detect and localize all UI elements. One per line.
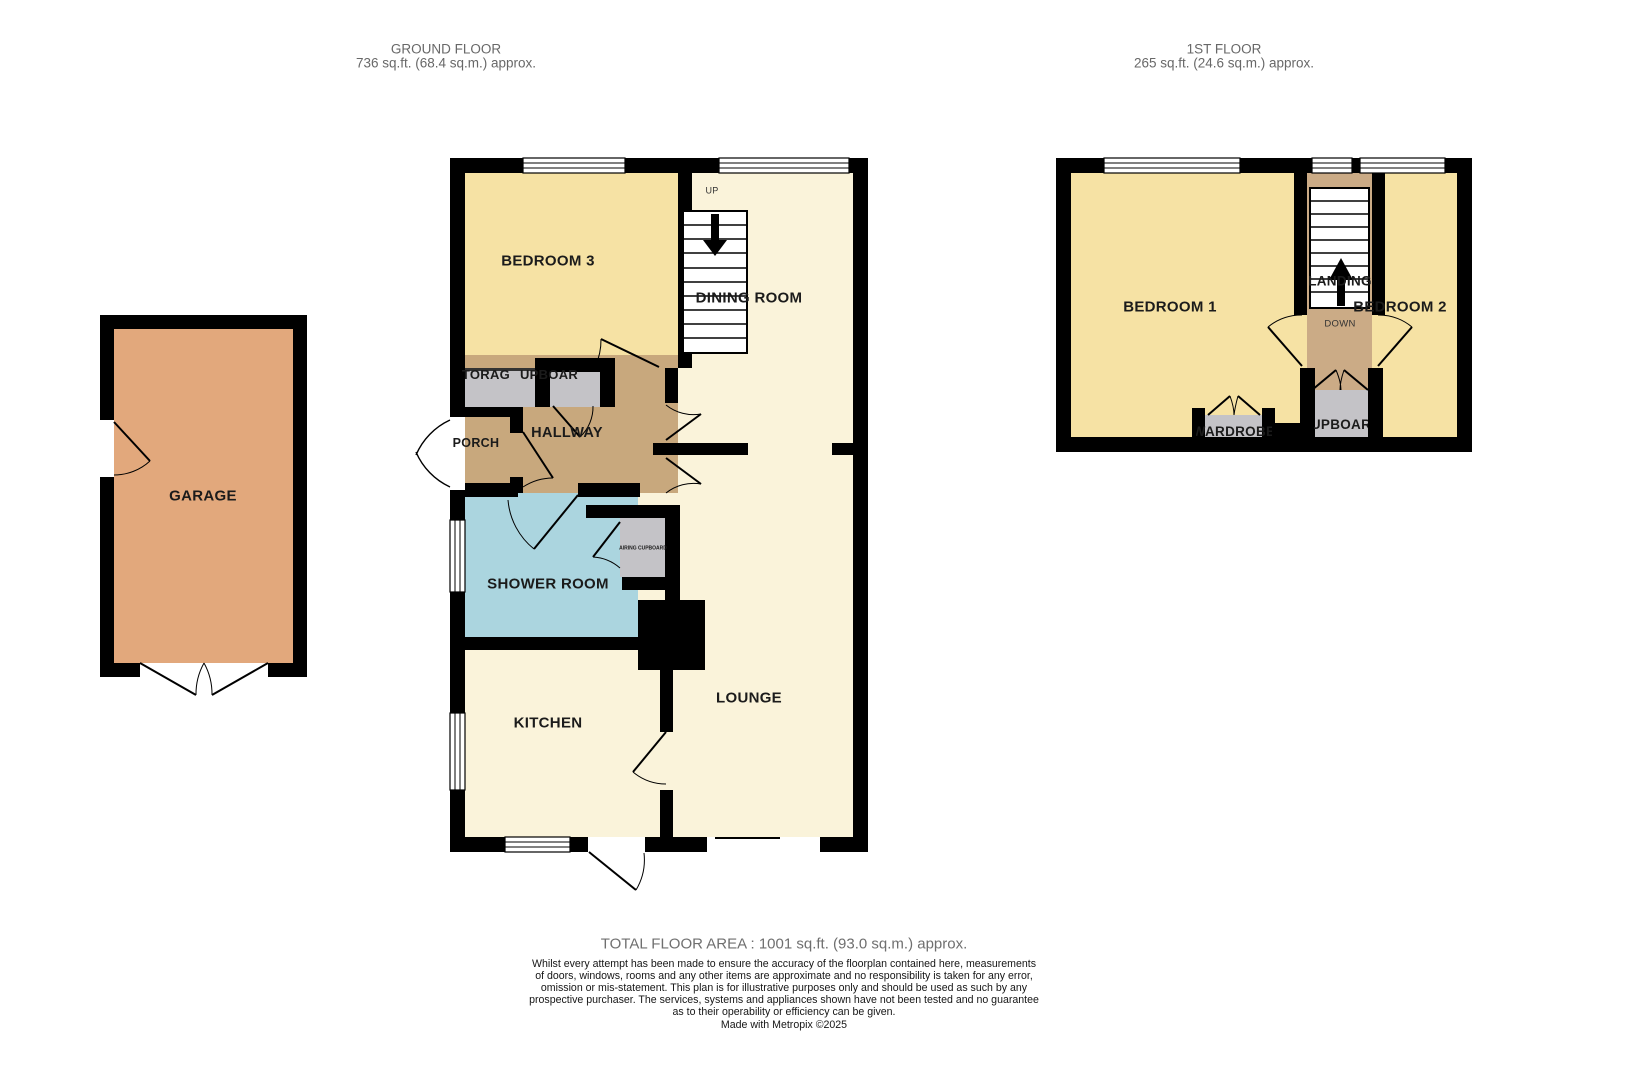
- wall: [1368, 368, 1383, 437]
- wall: [1294, 158, 1307, 315]
- garage-side-door-opening: [100, 420, 114, 477]
- wall: [600, 358, 615, 407]
- first-floor-area: 265 sq.ft. (24.6 sq.m.) approx.: [1134, 56, 1314, 70]
- room-label-bedroom3: BEDROOM 3: [501, 254, 595, 269]
- room-label-shower: SHOWER ROOM: [487, 577, 609, 592]
- stairs-up-label: UP: [705, 187, 718, 196]
- room-label-cupboard-gf: CUPBOARD: [520, 366, 578, 382]
- wall: [832, 443, 853, 455]
- room-label-landing: LANDING: [1308, 274, 1372, 288]
- gf-bedroom3-floor: [465, 173, 678, 368]
- disclaimer-line: of doors, windows, rooms and any other i…: [484, 970, 1084, 982]
- wall: [622, 577, 680, 590]
- wall: [1275, 423, 1302, 437]
- kitchen-back-door: [589, 852, 644, 890]
- gf-chimney-block: [638, 600, 705, 670]
- wall: [510, 417, 523, 433]
- window: [523, 158, 625, 173]
- metropix-credit: Made with Metropix ©2025: [484, 1019, 1084, 1031]
- disclaimer-line: omission or mis-statement. This plan is …: [484, 982, 1084, 994]
- wall: [578, 483, 640, 497]
- room-label-wardrobe: WARDROBE: [1196, 424, 1272, 439]
- room-label-airing-cupboard: AIRING CUPBOARD: [619, 547, 667, 552]
- window: [1312, 158, 1352, 173]
- wall: [1300, 368, 1315, 437]
- gf-back-door-opening: [588, 837, 645, 852]
- room-label-bedroom2: BEDROOM 2: [1353, 300, 1447, 315]
- gf-lounge-opening: [707, 837, 820, 852]
- room-label-bedroom1: BEDROOM 1: [1123, 300, 1217, 315]
- front-door: [416, 420, 450, 487]
- window: [719, 158, 849, 173]
- room-label-kitchen: KITCHEN: [514, 716, 583, 731]
- room-label-hallway: HALLWAY: [531, 426, 603, 441]
- wall: [653, 443, 748, 455]
- ground-floor-plan: [416, 158, 868, 890]
- first-floor-title: 1ST FLOOR: [1187, 42, 1262, 56]
- wall: [450, 637, 640, 650]
- garage-plan: [100, 315, 307, 695]
- window: [1360, 158, 1445, 173]
- wall: [665, 368, 678, 403]
- window: [450, 713, 465, 790]
- wall: [1372, 158, 1385, 315]
- stairs-down-label: DOWN: [1324, 319, 1355, 329]
- wall: [660, 670, 673, 732]
- disclaimer-line: as to their operability or efficiency ca…: [484, 1006, 1084, 1018]
- total-floor-area: TOTAL FLOOR AREA : 1001 sq.ft. (93.0 sq.…: [601, 937, 968, 952]
- wall: [586, 505, 680, 518]
- room-label-storage: STORAGE: [462, 366, 510, 382]
- room-label-garage: GARAGE: [169, 489, 237, 504]
- disclaimer-line: prospective purchaser. The services, sys…: [484, 994, 1084, 1006]
- room-label-lounge: LOUNGE: [716, 691, 782, 706]
- wall: [660, 790, 673, 837]
- room-label-cupboard-ff: CUPBOARD: [1314, 417, 1368, 433]
- gf-stairs: [683, 211, 747, 353]
- floorplan-page: GROUND FLOOR 736 sq.ft. (68.4 sq.m.) app…: [0, 0, 1641, 1080]
- ground-floor-area: 736 sq.ft. (68.4 sq.m.) approx.: [356, 56, 536, 70]
- ff-stairs: [1310, 188, 1369, 308]
- disclaimer-line: Whilst every attempt has been made to en…: [484, 958, 1084, 970]
- window: [1104, 158, 1240, 173]
- room-label-porch: PORCH: [453, 437, 500, 450]
- window: [505, 837, 570, 852]
- wall: [450, 407, 523, 417]
- window: [450, 520, 465, 592]
- ground-floor-title: GROUND FLOOR: [391, 42, 501, 56]
- floorplan-drawing: [0, 0, 1641, 1080]
- gf-front-door-opening: [450, 417, 465, 490]
- room-label-dining: DINING ROOM: [696, 291, 803, 306]
